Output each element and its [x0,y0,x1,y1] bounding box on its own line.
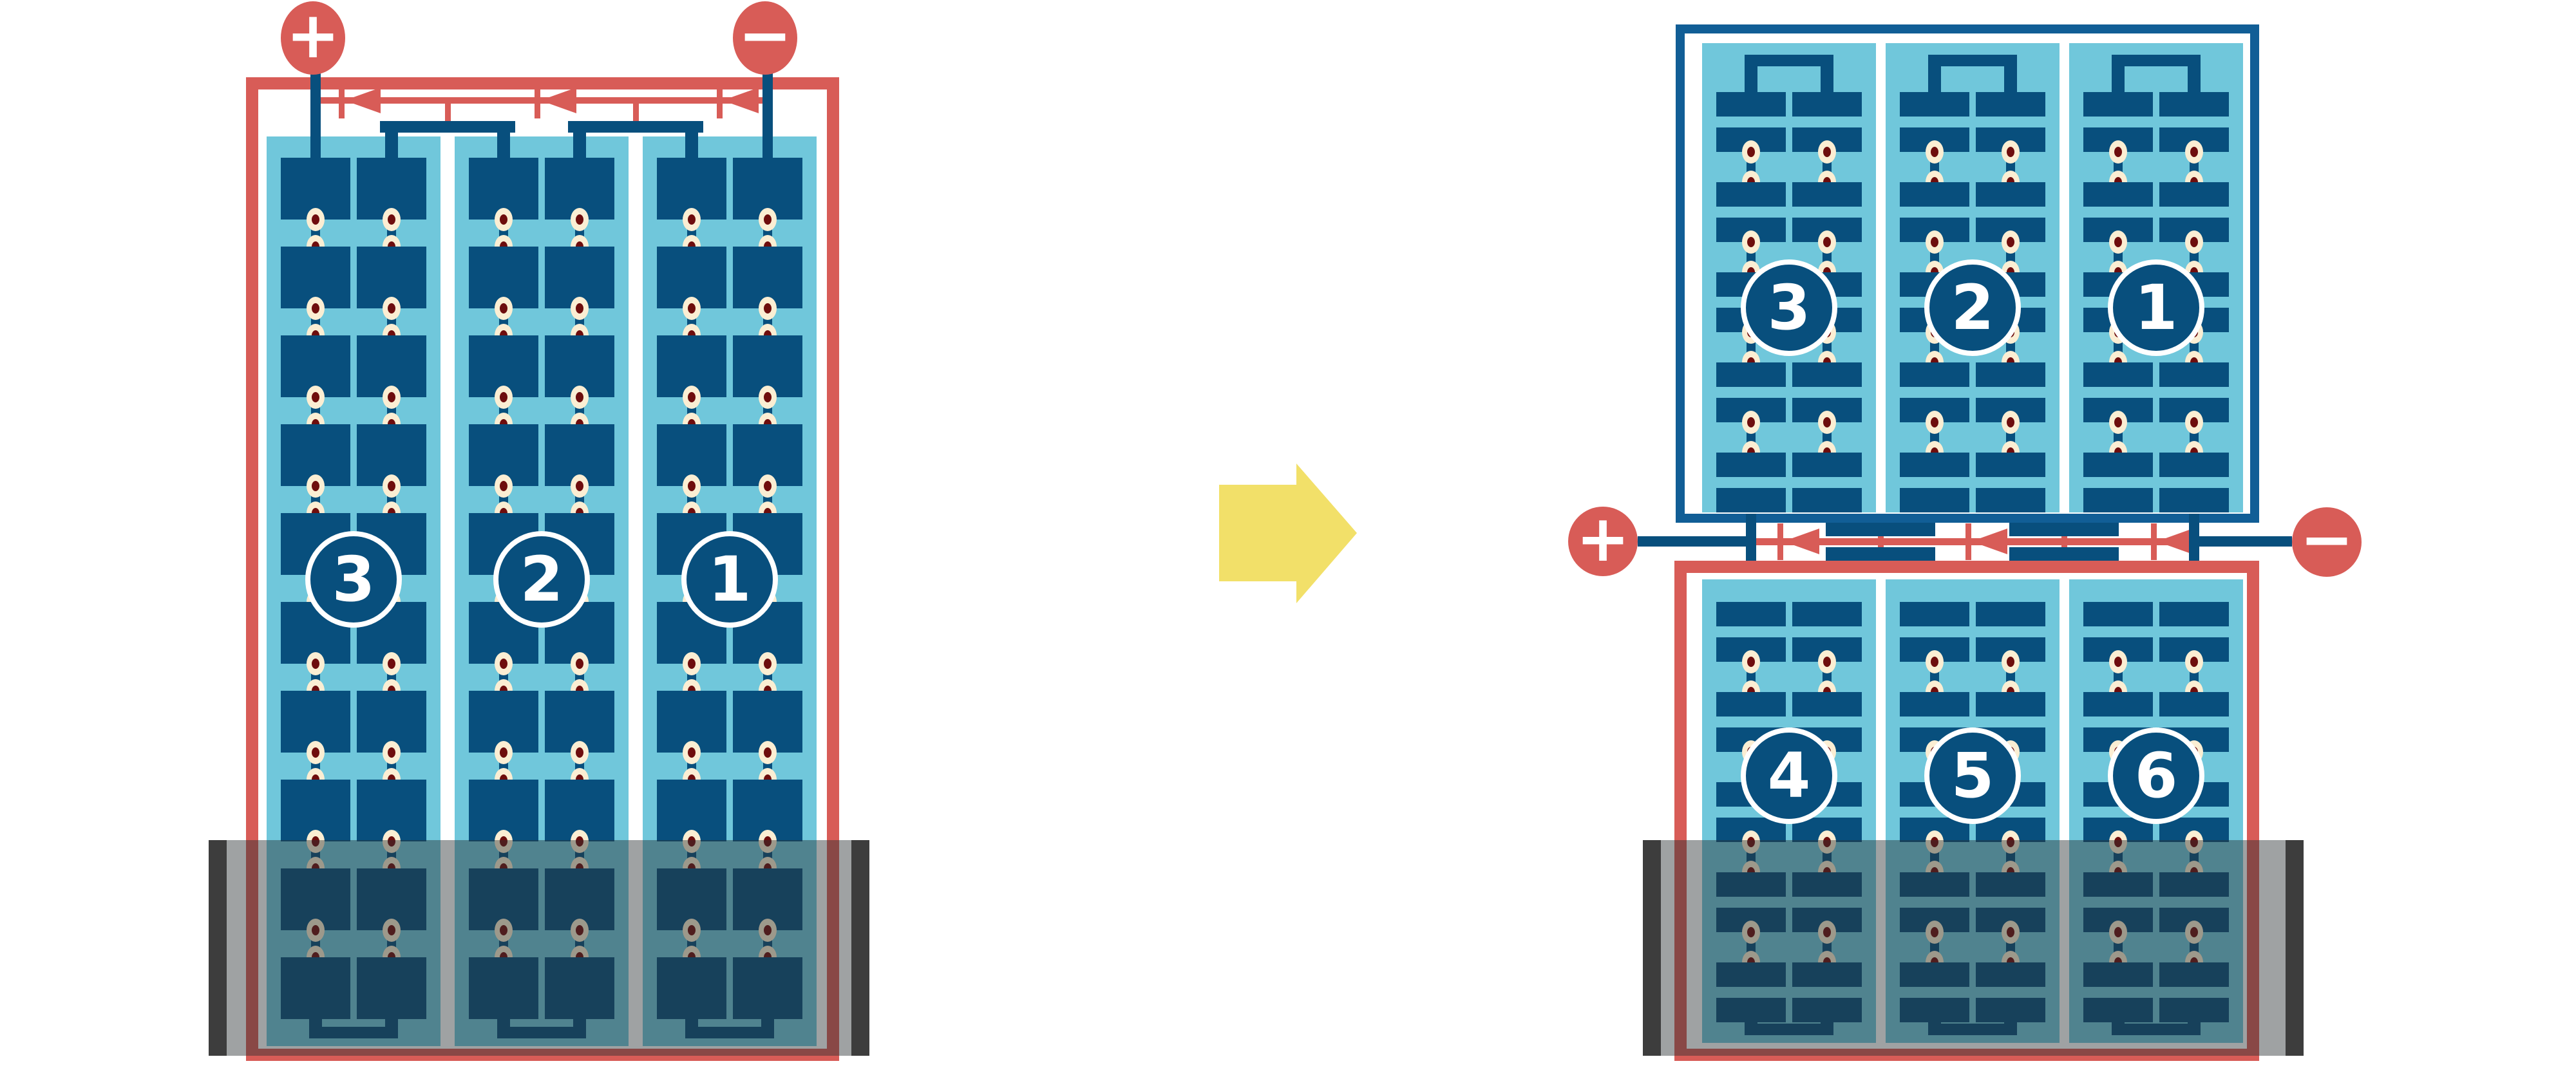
interconnect-tab [2009,547,2119,561]
interconnect-tab [2009,523,2119,536]
diode-tick [1965,523,1971,560]
positive-terminal: + [281,1,345,75]
string-bridge [568,121,703,133]
junction-stub [1746,514,1756,561]
plus-icon: + [286,3,340,68]
diode-tick [2151,523,2157,560]
shade-end-bar [209,840,227,1056]
bypass-diode-icon [540,88,576,113]
plus-icon: + [1576,507,1630,571]
interconnect-tab [1826,523,1935,536]
shade-end-bar [851,840,869,1056]
terminal-wire [762,64,773,159]
minus-icon: − [738,3,792,68]
diode-tick [717,82,723,118]
bypass-diode-icon [1971,529,2007,554]
negative-terminal: − [2292,507,2362,577]
diode-tick [339,82,345,118]
terminal-wire [1638,536,1751,547]
diode-tick [535,82,540,118]
bypass-diode-icon [723,88,759,113]
string-bridge-leg [497,133,510,159]
right-top-panel-frame [1676,24,2259,523]
shade-overlay [209,840,869,1056]
terminal-wire [310,64,321,159]
bypass-diode-icon [1783,529,1819,554]
string-bridge-leg [685,133,698,159]
negative-terminal: − [733,1,797,75]
shade-end-bar [1643,840,1661,1056]
transition-arrow-head [1296,464,1357,603]
string-bridge [380,121,515,133]
positive-terminal: + [1568,507,1638,576]
transition-arrow [1219,485,1296,581]
bypass-diode-icon [2157,529,2193,554]
string-bridge-leg [573,133,586,159]
bypass-diode-icon [345,88,381,113]
diode-tick [1777,523,1783,560]
shade-overlay [1643,840,2304,1056]
shade-end-bar [2286,840,2304,1056]
junction-stub [2189,514,2199,561]
solar-wiring-diagram: + − + − 321321456 [0,0,2576,1068]
string-bridge-leg [385,133,398,159]
interconnect-tab [1826,547,1935,561]
terminal-wire [2194,536,2292,547]
minus-icon: − [2300,507,2354,572]
